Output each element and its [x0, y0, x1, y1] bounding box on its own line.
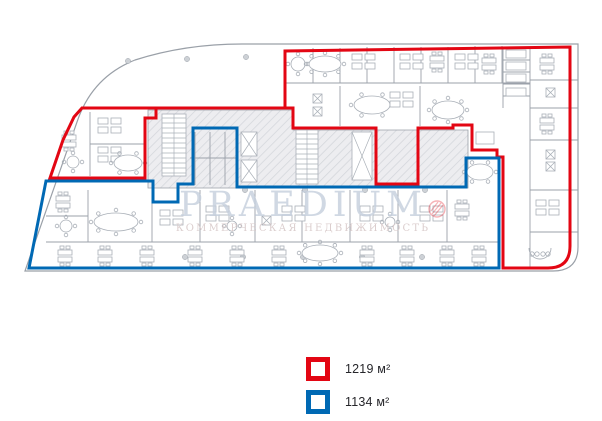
legend-label-red: 1219 м² [345, 362, 390, 376]
legend-label-blue: 1134 м² [345, 395, 390, 409]
floorplan-page: PRAEDIUM КОММЕРЧЕСКАЯ НЕДВИЖИМОСТЬ 1219 … [0, 0, 602, 421]
legend-swatch-blue [306, 390, 330, 414]
legend-swatch-red [306, 357, 330, 381]
floor-plan-image: PRAEDIUM КОММЕРЧЕСКАЯ НЕДВИЖИМОСТЬ [0, 0, 602, 421]
watermark: PRAEDIUM КОММЕРЧЕСКАЯ НЕДВИЖИМОСТЬ [176, 185, 445, 234]
legend-item-red: 1219 м² [306, 357, 390, 381]
watermark-tagline: КОММЕРЧЕСКАЯ НЕДВИЖИМОСТЬ [176, 223, 430, 234]
legend: 1219 м² 1134 м² [306, 357, 390, 421]
watermark-brand: PRAEDIUM [179, 185, 427, 225]
legend-item-blue: 1134 м² [306, 390, 390, 414]
